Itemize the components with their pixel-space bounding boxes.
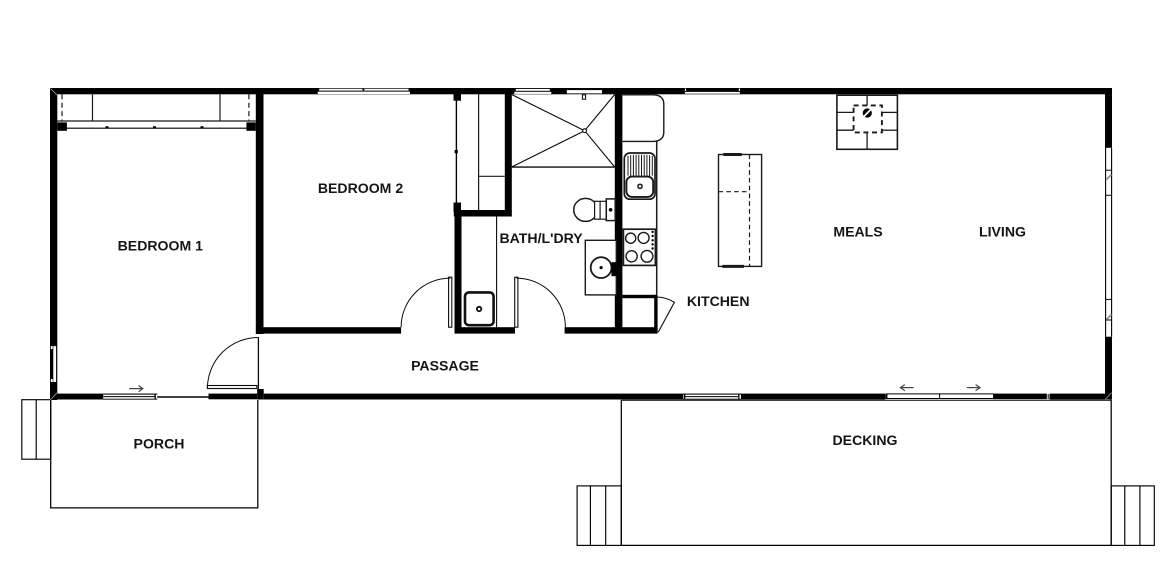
svg-text:MEALS: MEALS	[833, 223, 882, 239]
svg-text:PASSAGE: PASSAGE	[411, 358, 479, 374]
svg-text:BEDROOM 1: BEDROOM 1	[118, 237, 204, 253]
svg-text:BATH/L'DRY: BATH/L'DRY	[499, 230, 583, 246]
svg-text:BEDROOM 2: BEDROOM 2	[318, 180, 404, 196]
svg-text:LIVING: LIVING	[979, 223, 1026, 239]
svg-text:KITCHEN: KITCHEN	[687, 293, 750, 309]
svg-text:PORCH: PORCH	[134, 435, 185, 451]
svg-text:DECKING: DECKING	[833, 432, 898, 448]
